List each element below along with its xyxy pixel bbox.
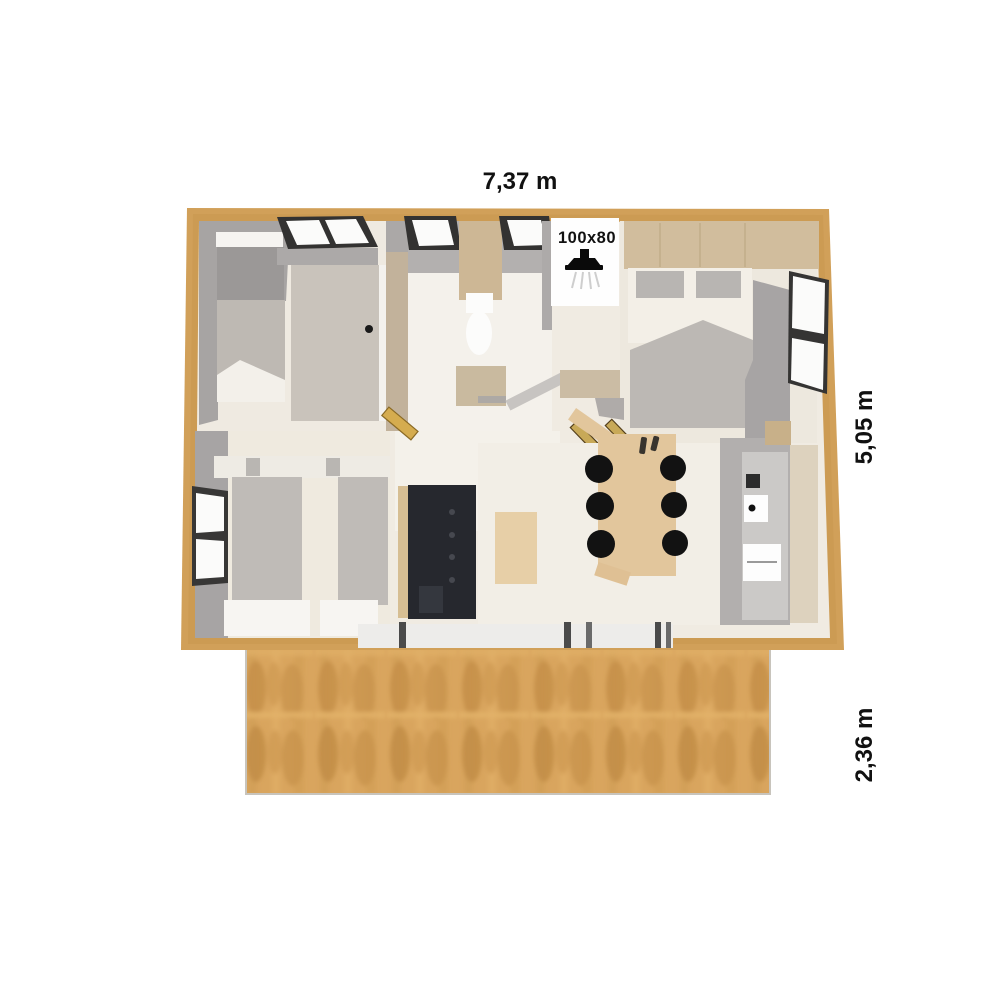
svg-text:5,05 m: 5,05 m (851, 390, 878, 465)
svg-text:2,36 m: 2,36 m (851, 708, 878, 783)
svg-text:100x80: 100x80 (558, 229, 616, 247)
svg-text:7,37 m: 7,37 m (483, 168, 558, 195)
